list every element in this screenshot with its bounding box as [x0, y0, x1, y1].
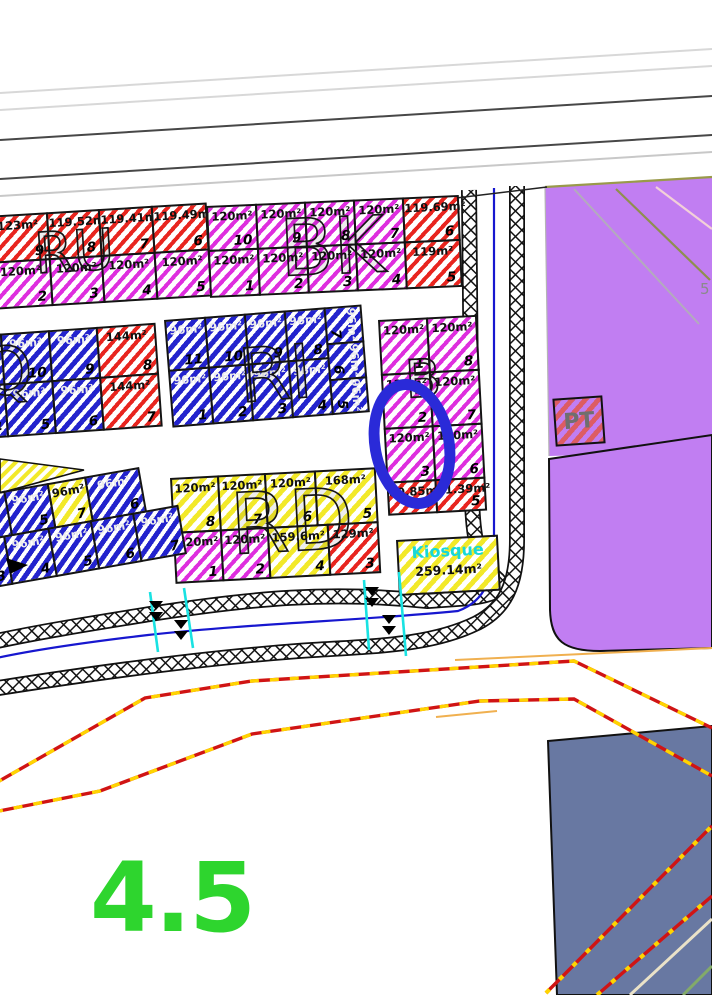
parcel-area-label: 96m² — [170, 371, 209, 388]
parcel-ri-7[interactable]: 96m²7 — [324, 304, 365, 345]
parcel-area-label: 96m² — [92, 517, 135, 538]
parcel-number: 6 — [330, 364, 347, 375]
parcel-number: 6 — [469, 461, 479, 477]
parcel-area-label: 96m² — [286, 311, 325, 328]
parcel-number: 7 — [169, 537, 181, 554]
parcel-area-label: 120m² — [208, 208, 256, 224]
parcel-area-label: 96m² — [53, 381, 100, 398]
parcel-area-label: 96m² — [206, 318, 245, 335]
parcel-ru-5[interactable]: 120m²5 — [154, 248, 213, 299]
block-letters-lq: Q — [0, 338, 35, 407]
parcel-area-label: 120m² — [386, 429, 433, 445]
parcel-number: 3 — [0, 568, 7, 585]
parcel-area-label: 120m² — [434, 427, 482, 443]
parcel-bk-5[interactable]: 119m²5 — [404, 239, 463, 289]
parcel-ri-5[interactable]: 96m²5 — [329, 376, 370, 415]
parcel-b-5[interactable]: 81.39m²5 — [434, 477, 487, 514]
parcel-number: 2 — [417, 410, 427, 426]
parcel-bl-7[interactable]: 96m²7 — [132, 505, 187, 562]
parcel-lq-9[interactable]: 96m²9 — [48, 327, 102, 382]
pt-parcel[interactable]: PT — [552, 395, 605, 446]
parcel-area-label: 96m² — [346, 343, 363, 378]
edge-label-5: 5 — [700, 280, 710, 298]
parcel-number: 8 — [463, 353, 473, 369]
parcel-number: 4 — [392, 272, 402, 288]
parcel-area-label: 120m² — [428, 319, 476, 335]
parcel-number: 5 — [40, 416, 50, 433]
parcel-ri-11[interactable]: 96m²11 — [164, 317, 210, 372]
parcel-number: 4 — [142, 282, 152, 299]
parcel-b-4[interactable]: 80.85m²4 — [386, 479, 438, 516]
block-letters-ru: RU — [33, 222, 116, 283]
parcel-number: 5 — [471, 493, 481, 509]
parcel-b-6[interactable]: 120m²6 — [432, 423, 486, 482]
parcel-number: 5 — [82, 553, 94, 570]
parcel-area-label: 144m² — [101, 377, 158, 395]
parcel-number: 5 — [38, 512, 50, 529]
parcel-area-label: 120m² — [210, 252, 258, 268]
parcel-number: 1 — [245, 278, 255, 294]
parcel-number: 7 — [139, 236, 149, 253]
parcel-area-label: 96m² — [246, 315, 285, 332]
parcel-number: 4 — [40, 560, 52, 577]
parcel-number: 5 — [447, 269, 457, 285]
parcel-ri-6[interactable]: 96m²6 — [326, 340, 367, 381]
parcel-kq[interactable]: Kiosque259.14m² — [396, 535, 501, 596]
parcel-number: 9 — [85, 361, 95, 378]
parcel-lq-7[interactable]: 144m²7 — [99, 373, 163, 431]
parcel-area-label: 96m² — [135, 509, 180, 530]
parcel-number: 1 — [208, 564, 218, 580]
parcel-area-label: 96m² — [87, 471, 141, 494]
highway-lines — [0, 49, 712, 196]
block-letters-bk: BK — [278, 206, 386, 288]
parcel-number: 8 — [206, 514, 216, 530]
parcel-area-label: 144m² — [98, 327, 155, 345]
parcel-number: 6 — [88, 413, 98, 430]
parcel-number: 4 — [317, 397, 328, 414]
plan-canvas: PT 5 4.5 123m²9119.52m²8119.41m²7119.49m… — [0, 0, 712, 995]
parcel-number: 6 — [445, 223, 455, 239]
parcel-lq-6[interactable]: 96m²6 — [51, 377, 105, 434]
parcel-area-label: 96m² — [6, 532, 51, 553]
parcel-number: 8 — [142, 357, 152, 374]
parcel-area-label: 120m² — [380, 321, 427, 337]
parcel-area-label: 119m² — [406, 243, 460, 259]
parcel-area-label: 259.14m² — [399, 560, 498, 580]
parcel-number: 10 — [233, 232, 252, 249]
block-letters-b: B — [404, 353, 442, 407]
block-letters-rd: RD — [228, 477, 355, 567]
parcel-area-label: 96m² — [6, 487, 50, 508]
parcel-number: 11 — [184, 351, 204, 368]
zone-label: 4.5 — [90, 842, 254, 954]
parcel-number: 3 — [365, 555, 375, 571]
parcel-ri-1[interactable]: 96m²1 — [168, 367, 214, 428]
parcel-number: 1 — [198, 407, 209, 424]
parcel-number: 6 — [193, 233, 203, 250]
slate-parcel[interactable] — [548, 726, 712, 995]
parcel-number: 6 — [129, 496, 141, 513]
parcel-area-label: 96m² — [49, 481, 87, 501]
parcel-lq-8[interactable]: 144m²8 — [96, 323, 159, 379]
parcel-number: 4 — [0, 420, 3, 437]
parcel-area-label: 119.49m² — [153, 207, 206, 224]
parcel-area-label: 96m² — [50, 524, 93, 545]
parcel-area-label: 119.69m² — [404, 199, 458, 215]
parcel-number: 3 — [89, 285, 99, 302]
parcel-number: 7 — [466, 407, 476, 423]
parcel-area-label: 96m² — [348, 378, 365, 413]
parcel-b-3[interactable]: 120m²3 — [384, 425, 437, 484]
parcel-bk-10[interactable]: 120m²10 — [206, 204, 259, 252]
parcel-number: 7 — [390, 226, 400, 242]
parcel-area-label: 96m² — [344, 307, 361, 342]
parcel-number: 7 — [146, 409, 156, 426]
parcel-number: 6 — [124, 545, 136, 562]
purple-parcel-lower[interactable] — [549, 435, 712, 651]
parcel-number: 7 — [327, 329, 344, 340]
parcel-area-label: 120m² — [172, 480, 218, 496]
parcel-number: 3 — [420, 463, 430, 479]
parcel-number: 5 — [196, 279, 206, 296]
parcel-number: 8 — [313, 342, 324, 359]
parcel-area-label: 120m² — [156, 253, 209, 270]
parcel-number: 5 — [362, 505, 372, 521]
parcel-number: 5 — [334, 399, 351, 410]
kiosque-label: Kiosque — [398, 539, 497, 563]
parcel-number: 4 — [422, 495, 432, 511]
parcel-area-label: 96m² — [50, 331, 97, 348]
parcel-ru-6[interactable]: 119.49m²6 — [151, 203, 210, 254]
block-letters-ri: RI — [236, 335, 315, 415]
parcel-bk-1[interactable]: 120m²1 — [208, 248, 261, 298]
orange-lines — [436, 648, 712, 717]
parcel-area-label: 96m² — [166, 321, 205, 338]
parcel-number: 2 — [37, 288, 47, 305]
parcel-number: 7 — [76, 505, 88, 522]
parcel-bk-6[interactable]: 119.69m²6 — [402, 195, 461, 243]
